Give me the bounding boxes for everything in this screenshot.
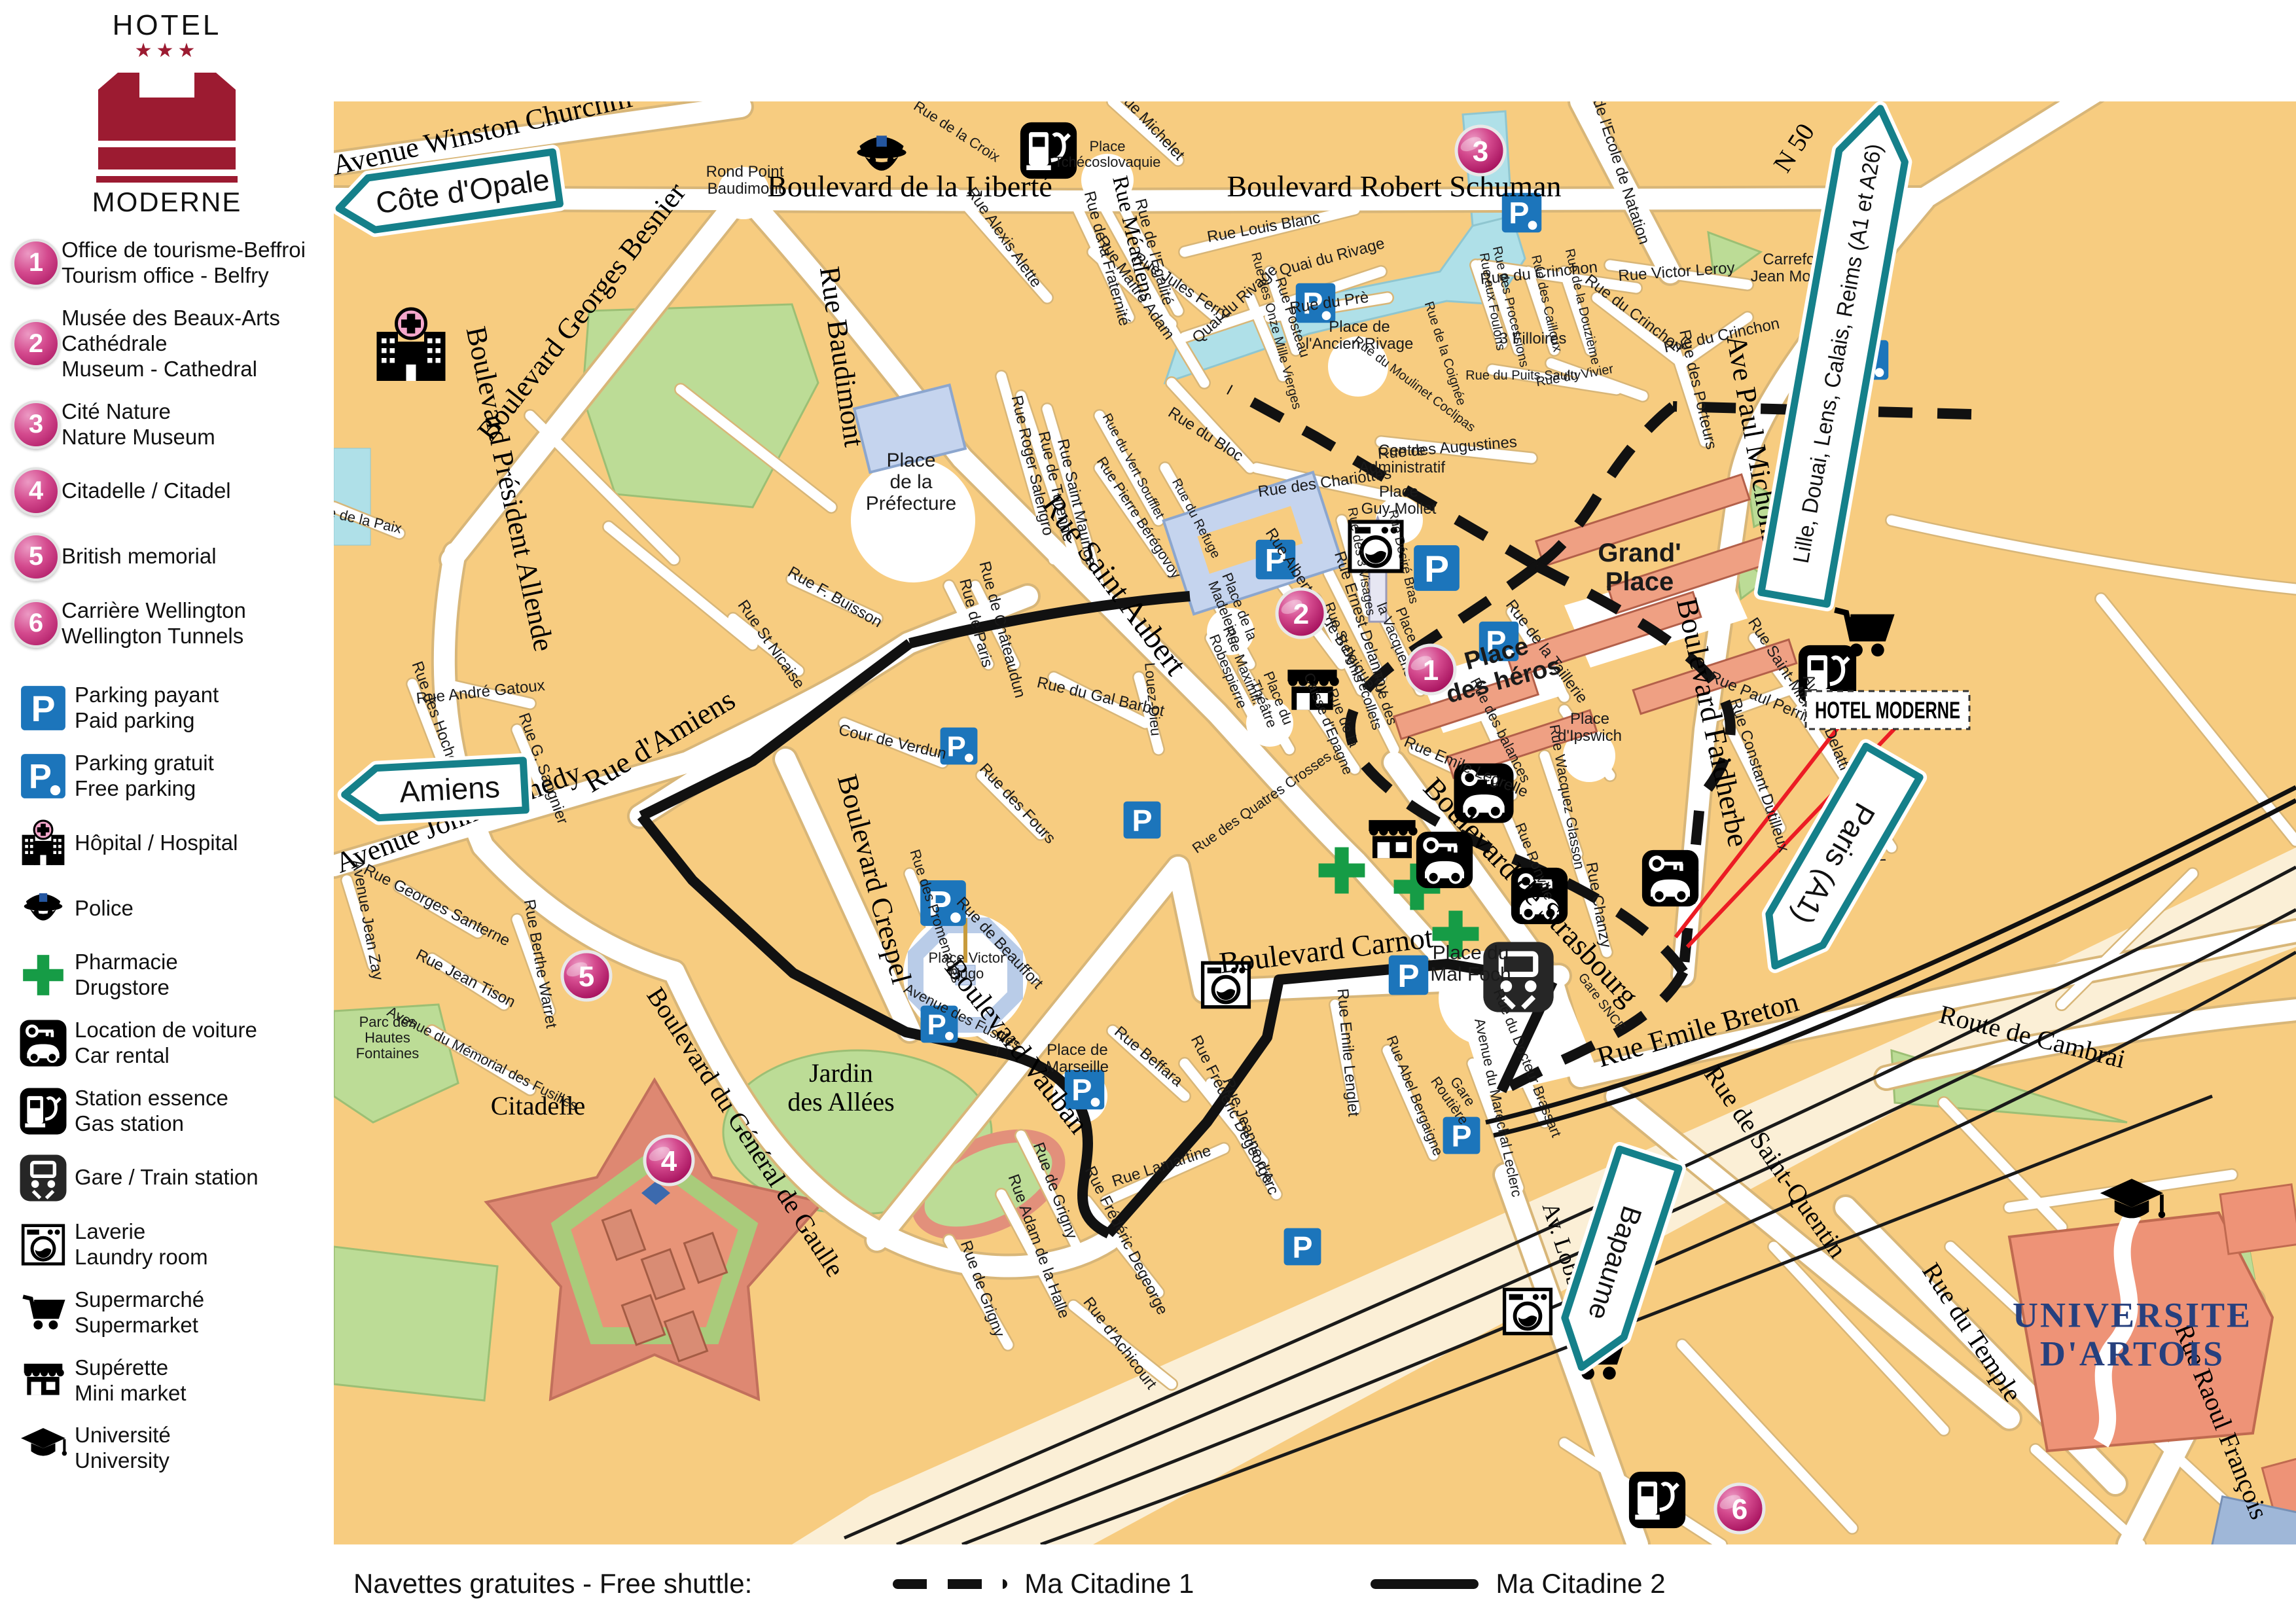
legend-item-label: Station essenceGas station	[75, 1086, 228, 1137]
legend-item-pf: Parking gratuitFree parking	[12, 751, 334, 802]
marker-6-badge: 6	[12, 599, 60, 648]
university-block	[2220, 1185, 2296, 1254]
marker-number: 4	[661, 1145, 677, 1177]
legend-item-label: UniversitéUniversity	[75, 1423, 171, 1474]
hospital-icon	[19, 819, 67, 867]
logo-castle-icon	[96, 63, 238, 175]
map-marker-3: 3	[1456, 126, 1505, 175]
marker-5-badge: 5	[12, 533, 60, 581]
police-icon	[19, 884, 67, 933]
legend-item-label: Police	[75, 896, 134, 921]
legend-item-laundry: LaverieLaundry room	[12, 1219, 334, 1270]
minimarket-icon	[19, 1357, 67, 1405]
cart-icon	[19, 1289, 67, 1337]
street-label: Parc desHautesFontaines	[356, 1014, 420, 1061]
legend-item-gas: Station essenceGas station	[12, 1086, 334, 1137]
legend-item-label: Hôpital / Hospital	[75, 830, 238, 856]
map-marker-6: 6	[1715, 1484, 1764, 1533]
legend-item-label: Citadelle / Citadel	[62, 478, 231, 504]
shuttle-legend: Navettes gratuites - Free shuttle: Ma Ci…	[334, 1544, 2296, 1623]
dashed-line-sample	[893, 1579, 1007, 1589]
legend-item-label: LaverieLaundry room	[75, 1219, 208, 1270]
street-label: Boulevard de la Liberté	[767, 169, 1052, 203]
shuttle-item-citadine1: Ma Citadine 1	[752, 1568, 1194, 1599]
legend-item-label: Office de tourisme-BeffroiTourism office…	[62, 238, 306, 289]
legend-item-label: Cité NatureNature Museum	[62, 399, 215, 450]
legend-item-gradcap: UniversitéUniversity	[12, 1423, 334, 1474]
legend-item-4: 4Citadelle / Citadel	[12, 467, 334, 516]
water-canal	[334, 448, 370, 545]
marker-4-badge: 4	[12, 467, 60, 516]
car-icon	[19, 1019, 67, 1067]
legend-item-label: Carrière WellingtonWellington Tunnels	[62, 598, 246, 649]
legend-sidebar: HOTEL ★★★ MODERNE 1Office de tourisme-Be…	[0, 0, 334, 1623]
logo-hotel-text: HOTEL	[85, 9, 249, 42]
university-label: UNIVERSITED'ARTOIS	[2013, 1295, 2252, 1373]
park	[334, 1247, 497, 1400]
map-marker-5: 5	[562, 952, 611, 1000]
gradcap-icon	[19, 1424, 67, 1472]
logo-moderne-text: MODERNE	[85, 187, 249, 218]
legend-item-cart: SupermarchéSupermarket	[12, 1287, 334, 1338]
legend-item-police: Police	[12, 884, 334, 933]
map-marker-1: 1	[1407, 645, 1455, 694]
hotel-moderne-label: HOTEL MODERNE	[1815, 697, 1960, 724]
city-map: P P Avenue Winston ChurchillBoulevard de…	[334, 101, 2296, 1544]
legend-item-label: British memorial	[62, 544, 217, 569]
shuttle-title: Navettes gratuites - Free shuttle:	[353, 1568, 752, 1599]
sign-text: Amiens	[399, 770, 501, 809]
legend-item-minimarket: SupéretteMini market	[12, 1355, 334, 1406]
map-area: P P Avenue Winston ChurchillBoulevard de…	[334, 101, 2296, 1544]
marker-number: 5	[579, 961, 594, 993]
legend-item-label: Location de voitureCar rental	[75, 1018, 257, 1069]
street-label: Place deMarseille	[1046, 1041, 1109, 1076]
marker-3-badge: 3	[12, 401, 60, 449]
legend-item-train: Gare / Train station	[12, 1154, 334, 1202]
legend-item-5: 5British memorial	[12, 533, 334, 581]
legend-item-label: SupermarchéSupermarket	[75, 1287, 204, 1338]
legend-item-label: Parking gratuitFree parking	[75, 751, 214, 802]
laundry-icon	[19, 1221, 67, 1269]
place-label: Grand'Place	[1598, 539, 1681, 596]
shuttle-item-citadine2: Ma Citadine 2	[1194, 1568, 1665, 1599]
legend-item-6: 6Carrière WellingtonWellington Tunnels	[12, 598, 334, 649]
hotel-logo: HOTEL ★★★ MODERNE	[85, 9, 249, 218]
logo-strip	[96, 176, 238, 184]
hotel-callout: HOTEL MODERNE	[1806, 691, 1969, 729]
marker-number: 3	[1473, 135, 1488, 168]
pp-icon	[1124, 802, 1161, 839]
legend-item-3: 3Cité NatureNature Museum	[12, 399, 334, 450]
legend-item-pp: Parking payantPaid parking	[12, 683, 334, 734]
legend-icon-list: Parking payantPaid parkingParking gratui…	[12, 683, 334, 1474]
legend-item-label: Gare / Train station	[75, 1165, 259, 1190]
pharmacy-icon	[19, 951, 67, 999]
legend-item-pharmacy: PharmacieDrugstore	[12, 950, 334, 1001]
legend-item-label: SupéretteMini market	[75, 1355, 187, 1406]
legend-item-car: Location de voitureCar rental	[12, 1018, 334, 1069]
train-icon	[19, 1154, 67, 1202]
street-label: 3 Filloires	[1499, 330, 1567, 348]
marker-number: 6	[1732, 1493, 1748, 1525]
map-marker-2: 2	[1277, 589, 1325, 637]
marker-number: 2	[1293, 598, 1309, 630]
legend-numbered-list: 1Office de tourisme-BeffroiTourism offic…	[12, 238, 334, 649]
hotel-moderne-city-map-page: HOTEL ★★★ MODERNE 1Office de tourisme-Be…	[0, 0, 2296, 1623]
car-icon	[1642, 850, 1698, 906]
pf-icon	[19, 752, 67, 800]
pp-icon	[19, 684, 67, 732]
map-marker-4: 4	[645, 1136, 693, 1185]
street-label: Boulevard Robert Schuman	[1227, 169, 1561, 203]
legend-item-label: Musée des Beaux-ArtsCathédraleMuseum - C…	[62, 306, 280, 382]
pp-icon	[1284, 1228, 1321, 1266]
legend-item-2: 2Musée des Beaux-ArtsCathédraleMuseum - …	[12, 306, 334, 382]
street-label: Rond PointBaudimont	[706, 163, 784, 198]
direction-sign: Amiens	[344, 760, 526, 819]
minimarket-icon	[1369, 820, 1417, 858]
street-label: Place duMal Foch	[1430, 942, 1511, 986]
solid-line-sample	[1371, 1579, 1479, 1589]
logo-stars: ★★★	[85, 39, 249, 62]
laundry-icon	[1505, 1289, 1551, 1333]
marker-2-badge: 2	[12, 319, 60, 368]
legend-item-1: 1Office de tourisme-BeffroiTourism offic…	[12, 238, 334, 289]
pp-icon	[1389, 955, 1429, 995]
legend-item-label: Parking payantPaid parking	[75, 683, 219, 734]
marker-number: 1	[1423, 654, 1439, 687]
marker-1-badge: 1	[12, 239, 60, 287]
pp-icon	[1414, 545, 1460, 591]
gas-icon	[19, 1087, 67, 1135]
legend-item-label: PharmacieDrugstore	[75, 950, 178, 1001]
legend-item-hospital: Hôpital / Hospital	[12, 819, 334, 867]
gas-icon	[1629, 1472, 1685, 1528]
